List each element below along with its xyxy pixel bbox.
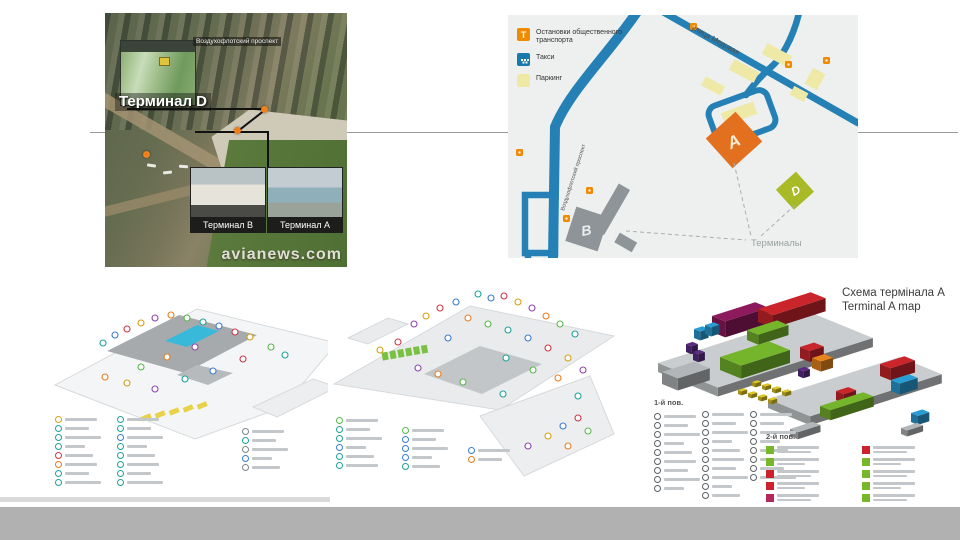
transport-map-panel[interactable]: А D В Терминалы улица Медовая Воздухофло… [508, 15, 858, 258]
terminal-floorplan-2-panel[interactable] [328, 278, 616, 506]
legend-row-transport-stop: Т Остановки общественного транспорта [517, 28, 622, 45]
map-marker-dot [234, 127, 241, 134]
terminal-a-label: Терминал A [267, 217, 343, 233]
legend-label: транспорта [536, 37, 573, 44]
airplane-silhouette [147, 163, 156, 167]
terminal-b-label: Терминал B [190, 217, 266, 233]
callout-line [127, 108, 263, 110]
parking-icon [517, 74, 530, 87]
legend-label: Паркинг [536, 74, 562, 83]
terminal-sign-detail [159, 57, 170, 66]
title-line-en: Terminal A map [842, 300, 945, 314]
footer-bar [0, 507, 960, 540]
terminal-a-map-title: Схема термінала А Terminal A map [842, 286, 945, 314]
airplane-silhouette [179, 165, 188, 169]
legend-row-parking: Паркинг [517, 74, 622, 87]
street-sign-label: Воздухофлотский проспект [193, 37, 281, 46]
floorplan-2-legend [336, 416, 546, 486]
inset-terminal-b-photo: Терминал B [190, 167, 266, 233]
floorplan-1-legend [55, 415, 330, 495]
terminal-b-photo [190, 167, 266, 217]
callout-line [267, 131, 269, 167]
terminal-floorplan-1-panel[interactable] [45, 287, 337, 500]
legend-row-taxi: Такси [517, 53, 622, 66]
aerial-photo-panel[interactable]: Воздухофлотский проспект Терминал D Терм… [105, 13, 347, 267]
legend-label: Такси [536, 53, 554, 62]
map-legend: Т Остановки общественного транспорта Так… [517, 28, 622, 95]
callout-line [195, 131, 268, 133]
footer-strip [0, 497, 330, 502]
presentation-slide: Воздухофлотский проспект Терминал D Терм… [0, 0, 960, 540]
floor2-header: 2-й пов. [766, 432, 956, 441]
map-marker-dot [143, 151, 150, 158]
inset-terminal-a-photo: Терминал A [267, 167, 343, 233]
title-line-ua: Схема термінала А [842, 286, 945, 300]
taxi-icon [517, 53, 530, 66]
terminal-a-photo [267, 167, 343, 217]
terminal-a-map-panel[interactable]: Схема термінала А Terminal A map 1-й пов… [650, 280, 958, 502]
terminals-label: Терминалы [751, 238, 802, 249]
transport-stop-icon: Т [517, 28, 530, 41]
legend-label: Остановки общественного [536, 29, 622, 36]
airplane-silhouette [163, 171, 172, 175]
watermark: avianews.com [222, 246, 343, 264]
map-marker-dot [261, 106, 268, 113]
floor2-legend: 2-й пов. [766, 432, 956, 502]
